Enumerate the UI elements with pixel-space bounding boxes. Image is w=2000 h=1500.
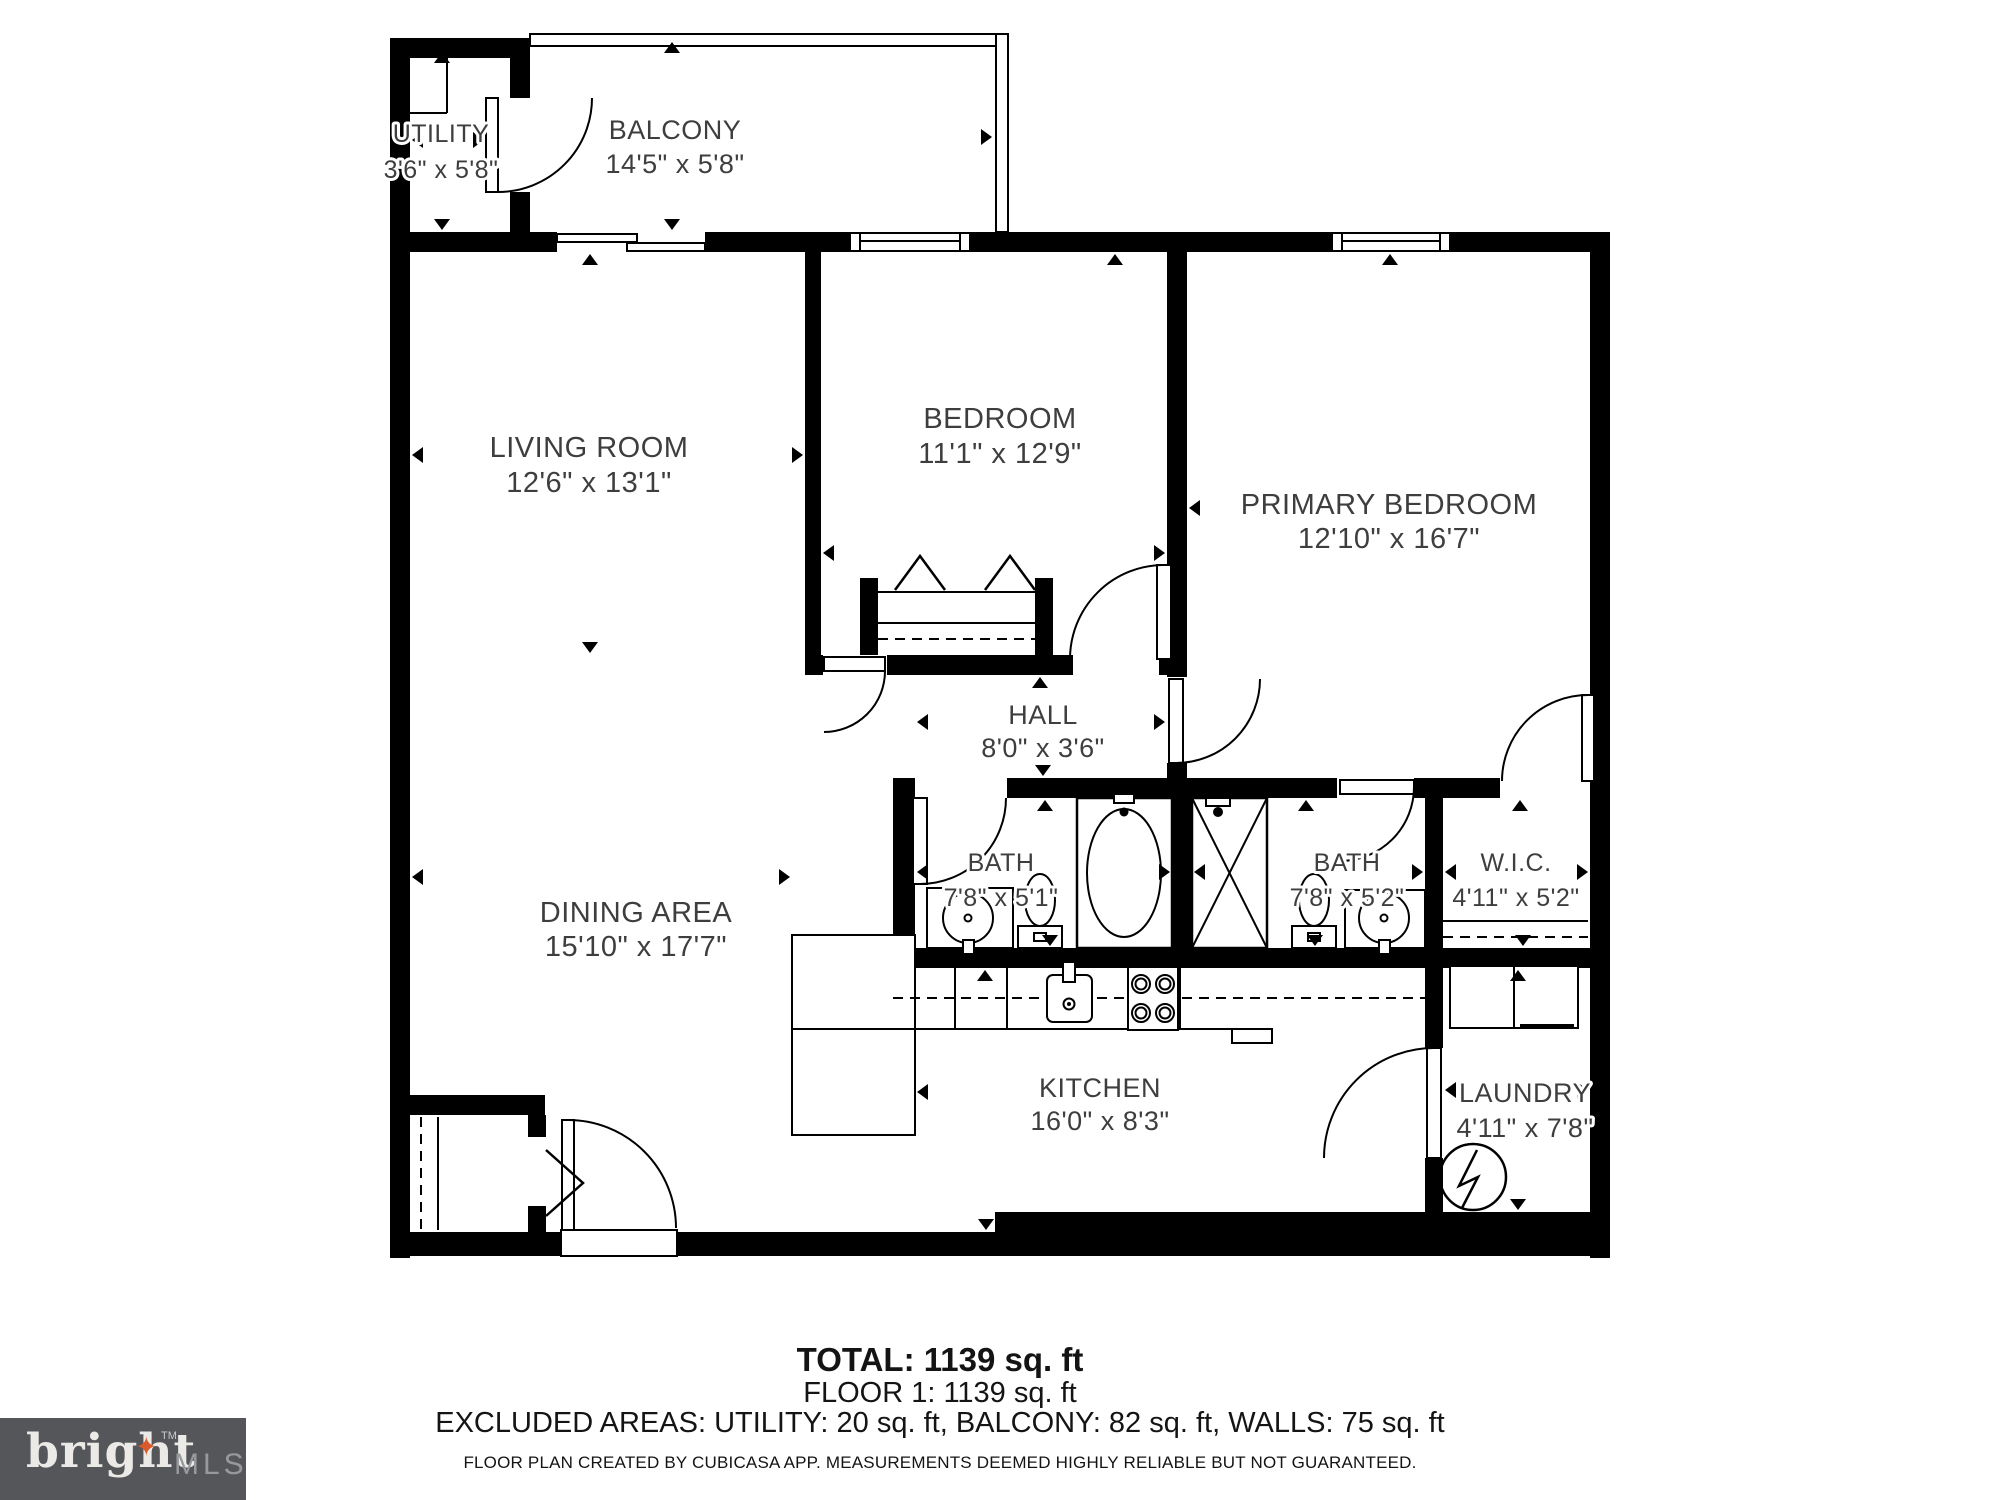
room-dining-area: DINING AREA 15'10" x 17'7" [540, 897, 733, 963]
bifold-door-icon [985, 556, 1035, 590]
room-label: DINING AREA [540, 897, 733, 929]
room-living-room: LIVING ROOM 12'6" x 13'1" [490, 432, 689, 499]
room-label: BEDROOM [923, 403, 1076, 435]
room-label: BALCONY [609, 115, 742, 145]
bedroom-window-icon [850, 233, 970, 251]
entry-closet [421, 1117, 583, 1230]
excluded-areas: EXCLUDED AREAS: UTILITY: 20 sq. ft, BALC… [340, 1408, 1540, 1438]
utility-door-swing [486, 98, 592, 192]
disclaimer: FLOOR PLAN CREATED BY CUBICASA APP. MEAS… [340, 1452, 1540, 1474]
floor-plan-drawing: UTILITY 3'6" x 5'8" BALCONY 14'5" x 5'8"… [0, 0, 2000, 1500]
room-dims: 12'10" x 16'7" [1298, 523, 1480, 555]
washer-icon [1450, 966, 1514, 1028]
room-dims: 3'6" x 5'8" [384, 156, 499, 184]
room-dims: 8'0" x 3'6" [981, 733, 1105, 763]
laundry-door-swing [1324, 1048, 1441, 1158]
stove-icon [1128, 967, 1178, 1030]
utility-shelf [410, 58, 447, 113]
hall-living-door-swing [824, 657, 885, 732]
bath2-fixtures [1192, 798, 1425, 954]
bifold-door-icon [895, 556, 945, 590]
room-balcony: BALCONY 14'5" x 5'8" [605, 115, 744, 179]
room-dims: 7'8" x 5'1" [944, 884, 1059, 912]
balcony-railing [530, 34, 1008, 232]
room-dims: 15'10" x 17'7" [545, 931, 727, 963]
floor-area: FLOOR 1: 1139 sq. ft [340, 1378, 1540, 1408]
primary-door-swing [1169, 679, 1260, 763]
bedroom-door-swing [1070, 565, 1171, 659]
room-label: W.I.C. [1480, 849, 1551, 877]
room-label: KITCHEN [1039, 1073, 1161, 1103]
water-heater-icon [1440, 1144, 1506, 1210]
primary-window-icon [1332, 233, 1450, 251]
sliding-door-icon [557, 234, 705, 251]
area-summary: TOTAL: 1139 sq. ft FLOOR 1: 1139 sq. ft … [340, 1342, 1540, 1474]
room-kitchen: KITCHEN 16'0" x 8'3" [1030, 1073, 1169, 1136]
room-dims: 4'11" x 5'2" [1452, 884, 1579, 912]
room-laundry: LAUNDRY 4'11" x 7'8" [1456, 1078, 1593, 1143]
room-dims: 16'0" x 8'3" [1030, 1106, 1169, 1136]
floor-plan-page: UTILITY 3'6" x 5'8" BALCONY 14'5" x 5'8"… [0, 0, 2000, 1500]
wic-door-swing [1502, 695, 1594, 781]
trademark-text: TM [161, 1430, 177, 1442]
room-dims: 7'8" x 5'2" [1290, 884, 1405, 912]
room-label: PRIMARY BEDROOM [1241, 489, 1537, 521]
wic-shelving [1443, 921, 1588, 937]
room-label: LIVING ROOM [490, 432, 689, 464]
room-dims: 11'1" x 12'9" [918, 438, 1081, 470]
dryer-icon [1514, 966, 1578, 1028]
room-label: UTILITY [393, 120, 490, 148]
room-hall: HALL 8'0" x 3'6" [981, 700, 1105, 763]
mls-text: MLS [174, 1448, 248, 1482]
room-dims: 14'5" x 5'8" [605, 149, 744, 179]
bath1-fixtures [927, 794, 1172, 954]
total-area: TOTAL: 1139 sq. ft [340, 1342, 1540, 1378]
room-labels: UTILITY 3'6" x 5'8" BALCONY 14'5" x 5'8"… [384, 115, 1594, 1143]
room-dims: 4'11" x 7'8" [1456, 1113, 1593, 1143]
room-dims: 12'6" x 13'1" [506, 467, 672, 499]
bedroom-closet [878, 556, 1035, 639]
kitchen-peninsula [792, 935, 915, 1135]
room-primary-bedroom: PRIMARY BEDROOM 12'10" x 16'7" [1241, 489, 1537, 555]
room-label: LAUNDRY [1459, 1078, 1591, 1108]
room-label: HALL [1008, 700, 1078, 730]
entry-threshold [561, 1230, 677, 1256]
kitchen-sink-icon [1047, 962, 1092, 1022]
room-label: BATH [968, 849, 1035, 877]
room-bedroom: BEDROOM 11'1" x 12'9" [918, 403, 1081, 470]
room-label: BATH [1314, 849, 1381, 877]
star-icon: ✦ [135, 1432, 158, 1463]
brightmls-logo: bright ✦ TM MLS [0, 1418, 246, 1500]
bathtub-icon [1077, 794, 1172, 948]
room-wic: W.I.C. 4'11" x 5'2" [1452, 849, 1579, 912]
entry-door-swing [562, 1120, 676, 1230]
